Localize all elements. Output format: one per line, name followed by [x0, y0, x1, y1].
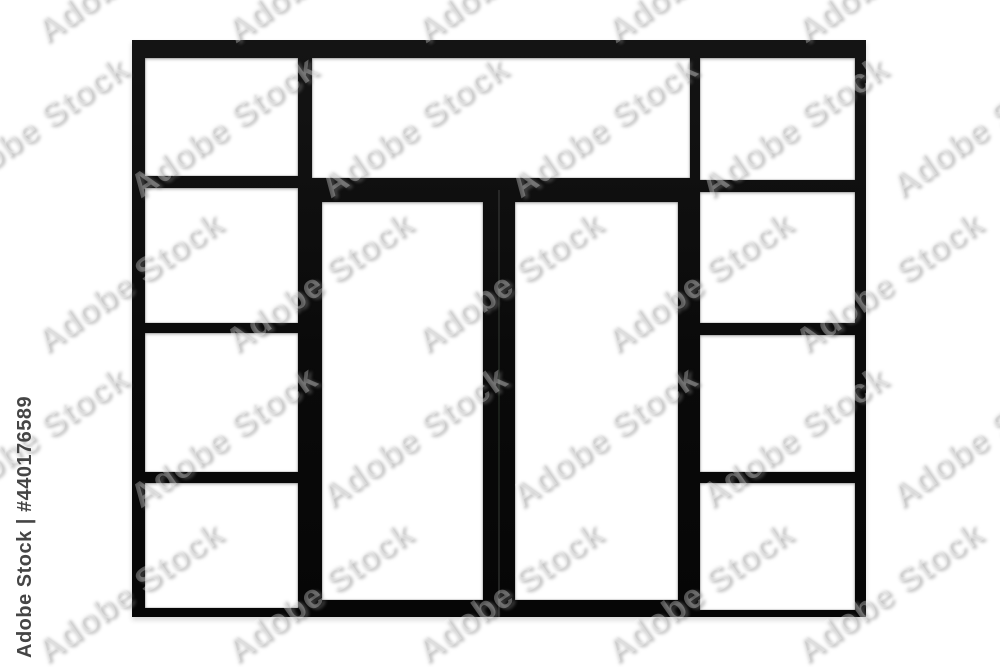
glass-pane-right-1 [700, 58, 855, 180]
watermark-tile: Adobe Stock [884, 49, 1000, 206]
stock-id-watermark: Adobe Stock | #440176589 [14, 396, 37, 658]
storefront-door-frame [132, 40, 866, 617]
glass-pane-left-4 [145, 483, 298, 608]
left-door-glass [322, 202, 483, 600]
glass-pane-right-4 [700, 483, 855, 610]
glass-pane-left-3 [145, 333, 298, 472]
door-meeting-seam [498, 190, 500, 617]
watermark-tile: Adobe Stock [0, 49, 135, 206]
right-door-glass [515, 202, 678, 600]
transom-glass-pane [312, 58, 690, 178]
watermark-tile: Adobe Stock [884, 359, 1000, 516]
glass-pane-right-3 [700, 335, 855, 472]
stock-photo-canvas: Adobe Stock Adobe Stock Adobe Stock Adob… [0, 0, 1000, 667]
glass-pane-left-2 [145, 188, 298, 323]
glass-pane-right-2 [700, 192, 855, 323]
glass-pane-left-1 [145, 58, 298, 176]
